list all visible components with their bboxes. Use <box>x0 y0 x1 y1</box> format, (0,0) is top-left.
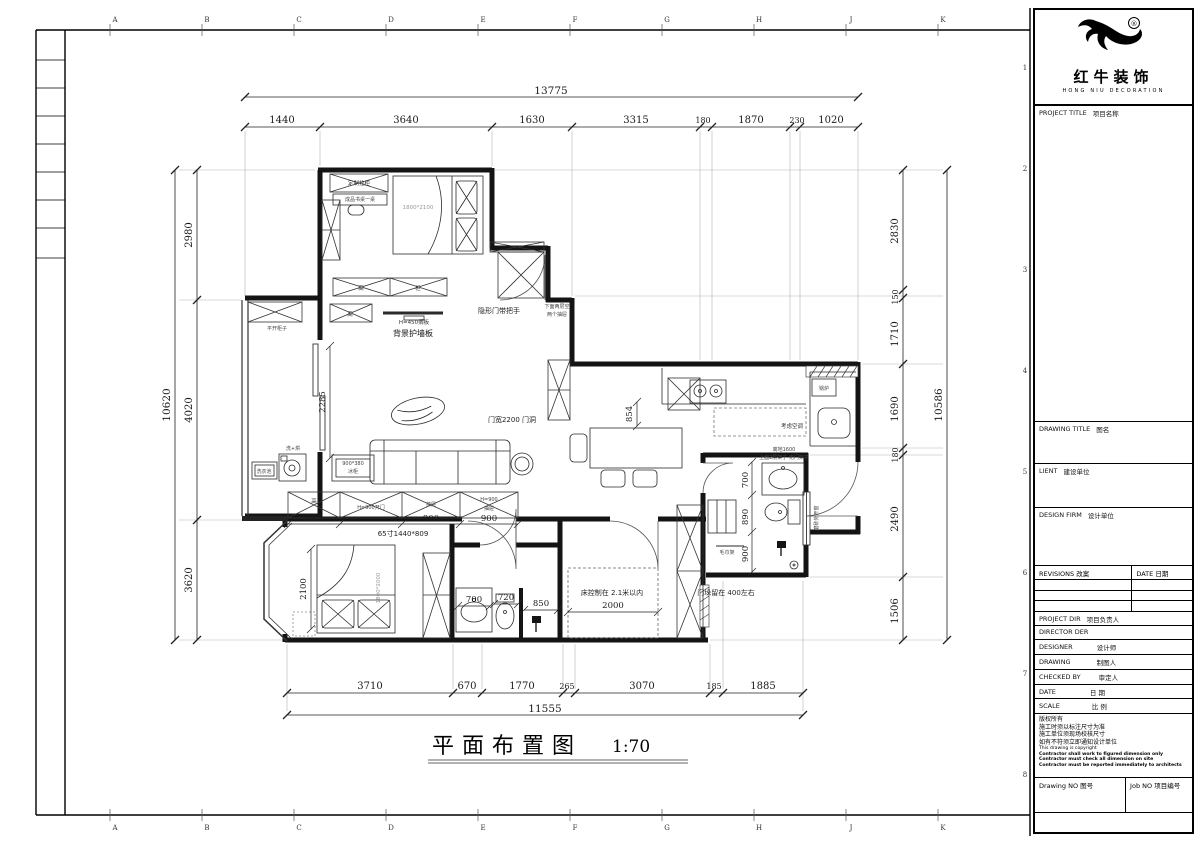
dim-label: 1885 <box>750 681 775 692</box>
master-wardrobe <box>423 553 450 638</box>
grid-number: 3 <box>1023 266 1027 274</box>
floor-plan-canvas: A B C D E F G H J K A B C D E F G H J K … <box>0 0 1032 844</box>
dim-bath1: 720 <box>498 593 514 603</box>
balcony-window <box>242 300 288 521</box>
dim-tv-row: 900 <box>423 514 439 524</box>
walls <box>245 168 860 642</box>
project-title-section: PROJECT TITLE 项目名称 <box>1035 106 1192 422</box>
dim-label: 670 <box>457 681 476 692</box>
label-cab-tall2: 高 <box>347 310 353 318</box>
tv <box>383 313 443 320</box>
grid-letter: H <box>756 824 762 832</box>
washer-dryer <box>279 454 306 481</box>
design-firm-cn: 设计单位 <box>1088 510 1114 520</box>
grid-letters-top: A B C D E F G H J K <box>111 16 946 24</box>
dim-label: 3315 <box>623 115 648 126</box>
bedroom1-low-cabinets <box>333 278 447 296</box>
job-no-cn: 项目编号 <box>1154 782 1180 790</box>
grid-letter: H <box>756 16 762 24</box>
director-en: DIRECTOR DER <box>1039 628 1088 636</box>
dim-living-wall: 2285 <box>318 391 328 413</box>
dim-bath2: 900 <box>741 546 751 562</box>
scale-row: SCALE 比 例 <box>1035 699 1192 714</box>
label-towel-rack: 毛巾架 <box>719 549 734 556</box>
dim-label: 1710 <box>890 321 901 346</box>
client-en: LIENT <box>1039 467 1057 475</box>
drawing-title-cn: 图名 <box>1096 424 1109 434</box>
dim-bath2: 700 <box>741 472 751 488</box>
dim-label: 265 <box>559 682 574 691</box>
plan-labels: 定制挂柜 成品书桌一桌 1800*2100 高 柜 隐形门带把手 下面两层空 两… <box>256 179 829 603</box>
dim-label: 185 <box>706 682 721 691</box>
project-title-cn: 项目名称 <box>1093 108 1119 118</box>
label-laundry-sink: 洗衣池 <box>256 468 271 475</box>
label-cab-tall: 高 <box>358 284 364 292</box>
brand-logo-section: ® 红牛装饰 HONG NIU DECORATION <box>1035 10 1192 106</box>
sofa <box>370 440 510 484</box>
dim-label: 4020 <box>184 397 195 422</box>
dim-right-total: 10586 <box>933 388 945 422</box>
dim-bed2-width: 2100 <box>299 578 309 600</box>
grid-letter: A <box>111 16 118 24</box>
label-balcony-cabinet: 平开柜子 <box>267 325 287 332</box>
label-shelf-note-2: 上面2层架子 无门架子 <box>759 454 809 461</box>
scale-en: SCALE <box>1039 702 1060 710</box>
dim-label: 1506 <box>890 598 901 623</box>
copyright-line: 如有不符须立即通知设计单位 <box>1039 739 1188 747</box>
label-freezer: 冰柜 <box>348 468 358 475</box>
drawing-no-cn: 图号 <box>1080 782 1093 790</box>
date-row: DATE 日 期 <box>1035 685 1192 699</box>
grid-letter: K <box>940 16 946 24</box>
tv-size-note: 65寸1440*809 <box>378 529 429 538</box>
label-shelf-note-1: 离地1600 <box>773 446 796 453</box>
dim-top-total: 13775 <box>534 85 567 97</box>
revisions-table: REVISIONS 改案 DATE 日期 <box>1035 566 1192 612</box>
job-no-en: Job NO <box>1130 782 1152 790</box>
dim-label: 1630 <box>519 115 544 126</box>
rev-date-en: DATE <box>1136 570 1153 578</box>
grid-number: 6 <box>1023 569 1028 577</box>
label-freezer-size: 900*380 <box>342 461 364 467</box>
copyright-line: 版权所有 <box>1039 716 1188 724</box>
designer-cn: 设计师 <box>1097 642 1117 652</box>
hall-shoe-cabinet <box>548 360 570 420</box>
revision-row <box>1035 591 1192 602</box>
grid-number: 8 <box>1023 771 1027 779</box>
dim-label: 180 <box>891 447 900 462</box>
drawing-by-row: DRAWING 制图人 <box>1035 655 1192 670</box>
grid-letter: F <box>573 16 578 24</box>
dim-label: 3070 <box>629 681 654 692</box>
copyright-line: 施工单位须现场校核尺寸 <box>1039 731 1188 739</box>
kitchen-bay-window <box>806 366 858 377</box>
drawing-by-en: DRAWING <box>1039 658 1071 666</box>
brand-name: 红牛装饰 <box>1035 66 1192 87</box>
stove <box>690 380 726 403</box>
bathroom-window <box>803 492 810 545</box>
drawing-title-en: DRAWING TITLE <box>1039 425 1090 433</box>
balcony-cabinet-box <box>248 302 302 322</box>
drawing-by-cn: 制图人 <box>1097 657 1117 667</box>
grid-letter: B <box>204 824 209 832</box>
dim-chain-top: 13775 1440 3640 1630 3315 180 1870 230 1… <box>241 85 862 131</box>
bedroom3-wardrobe <box>677 505 703 638</box>
drawing-sheet: A B C D E F G H J K A B C D E F G H J K … <box>0 0 1200 844</box>
bedroom1-wall-wardrobe <box>322 200 340 260</box>
hidden-door-arc <box>500 255 545 300</box>
label-custom-cabinet: 定制挂柜 <box>348 179 371 187</box>
dim-label: 180 <box>695 116 710 125</box>
dim-label: 3710 <box>357 681 382 692</box>
grid-letter: J <box>849 16 853 24</box>
dim-label: 3620 <box>184 567 195 592</box>
design-firm-section: DESIGN FIRM 设计单位 <box>1035 508 1192 566</box>
label-hidden-door: 隐形门带把手 <box>478 306 520 315</box>
label-door-opening: 门宽2200 门洞 <box>488 415 536 424</box>
bath2-door-arc <box>703 463 733 493</box>
revision-row <box>1035 580 1192 591</box>
drawing-number-section: Drawing NO 图号 Job NO 项目编号 <box>1035 778 1192 813</box>
dim-label: 1770 <box>509 681 534 692</box>
grid-letter: B <box>204 16 209 24</box>
grid-letter: J <box>849 824 853 832</box>
doors <box>468 255 858 569</box>
label-tv-cab-4a: H=900 <box>480 497 498 503</box>
dim-label: 230 <box>789 116 804 125</box>
label-window-note: 磨砂外开窗 <box>813 505 820 530</box>
dim-label: 150 <box>891 289 900 304</box>
dim-tv-row: 880 <box>306 514 322 524</box>
dim-label: 3640 <box>393 115 418 126</box>
furniture <box>252 176 856 640</box>
dim-bottom-total: 11555 <box>528 703 561 715</box>
plan-title: 平面布置图 <box>432 734 582 759</box>
grid-letter: G <box>664 824 670 832</box>
dim-bath1: 700 <box>466 595 482 605</box>
label-bed1-size: 1800*2100 <box>403 205 434 211</box>
project-dir-cn: 项目负责人 <box>1087 614 1120 624</box>
grid-letter: E <box>480 16 485 24</box>
revision-strip <box>36 60 65 258</box>
dim-chain-bottom: 11555 3710 670 1770 265 3070 185 1885 <box>283 681 807 719</box>
label-ac-note: 考虑空调 <box>781 422 804 430</box>
label-drawers-1: 下面两层空 <box>544 303 569 310</box>
overhead-cabinets <box>714 408 806 436</box>
label-shelf: H=450搁板 <box>399 318 430 326</box>
freezer <box>332 455 374 481</box>
drawing-no-en: Drawing NO <box>1039 782 1078 790</box>
dim-dining-gap: 854 <box>625 406 635 422</box>
checked-by-cn: 审定人 <box>1099 672 1119 682</box>
dim-bath2: 890 <box>741 509 751 525</box>
project-dir-row: PROJECT DIR 项目负责人 <box>1035 612 1192 626</box>
dim-left-total: 10620 <box>161 388 173 421</box>
drawing-title-section: DRAWING TITLE 图名 <box>1035 422 1192 464</box>
kitchen-sink <box>818 408 850 438</box>
director-row: DIRECTOR DER <box>1035 626 1192 640</box>
brand-subtitle: HONG NIU DECORATION <box>1035 88 1192 94</box>
design-firm-en: DESIGN FIRM <box>1039 511 1082 519</box>
dim-chain-left: 10620 2980 4020 3620 <box>161 166 201 644</box>
dim-bed3-width: 2000 <box>602 601 624 611</box>
label-pier-note: 门垛留在 400左右 <box>697 588 755 597</box>
label-tv-cab-3: 抽屉 <box>426 501 436 508</box>
checked-by-en: CHECKED BY <box>1039 673 1081 681</box>
plan-title-group: 平面布置图 1:70 <box>428 734 688 763</box>
label-desk: 成品书桌一桌 <box>345 196 375 203</box>
dim-chain-right: 10586 2830 150 1710 1690 180 2490 1506 <box>890 166 951 644</box>
grid-number: 7 <box>1023 670 1027 678</box>
project-title-en: PROJECT TITLE <box>1039 109 1087 117</box>
grid-letter: A <box>111 824 118 832</box>
bay-window <box>264 521 292 641</box>
checked-by-row: CHECKED BY 审定人 <box>1035 670 1192 685</box>
grid-letter: D <box>388 824 394 832</box>
label-cab-gui: 柜 <box>415 284 421 292</box>
coffee-table <box>389 393 447 430</box>
dim-label: 1690 <box>890 396 901 421</box>
label-washer: 洗+烘 <box>286 445 300 452</box>
revisions-cn: 改案 <box>1076 570 1089 578</box>
plan-scale: 1:70 <box>612 737 650 757</box>
grid-number: 1 <box>1023 64 1027 72</box>
label-tv-cab-4b: 抽屉 <box>484 505 494 512</box>
project-dir-en: PROJECT DIR <box>1039 615 1081 623</box>
bull-logo-icon: ® <box>1074 15 1154 61</box>
dim-tv-row: 900 <box>481 514 497 524</box>
bedroom3-door-arc <box>610 521 658 569</box>
dining-set <box>570 428 682 487</box>
dim-label: 1440 <box>269 115 294 126</box>
client-section: LIENT 建设单位 <box>1035 464 1192 508</box>
label-tv-cab-1: 高 <box>311 497 317 505</box>
grid-letter: D <box>388 16 394 24</box>
label-drawers-2: 两个抽屉 <box>547 311 567 318</box>
grid-letter: K <box>940 824 946 832</box>
title-block-footer <box>1035 813 1192 832</box>
dim-label: 1870 <box>738 115 763 126</box>
dim-label: 1020 <box>818 115 843 126</box>
grid-letter: F <box>573 824 578 832</box>
revisions-en: REVISIONS <box>1039 570 1074 578</box>
date-cn: 日 期 <box>1090 687 1105 697</box>
revision-row <box>1035 601 1192 611</box>
label-boiler: 锅炉 <box>819 385 829 392</box>
grid-number: 4 <box>1023 367 1028 375</box>
client-cn: 建设单位 <box>1063 466 1089 476</box>
grid-numbers-right: 1 2 3 4 5 6 7 8 <box>1023 64 1028 779</box>
date-en: DATE <box>1039 688 1056 696</box>
dim-label: 2980 <box>184 222 195 247</box>
rev-date-cn: 日期 <box>1155 570 1168 578</box>
grid-letter: C <box>296 824 301 832</box>
dim-label: 2490 <box>890 506 901 531</box>
registered-mark: ® <box>1130 20 1137 28</box>
grid-letters-bottom: A B C D E F G H J K <box>111 824 946 832</box>
designer-row: DESIGNER 设计师 <box>1035 640 1192 655</box>
grid-letter: E <box>480 824 485 832</box>
grid-letter: G <box>664 16 670 24</box>
designer-en: DESIGNER <box>1039 643 1073 651</box>
title-block: ® 红牛装饰 HONG NIU DECORATION PROJECT TITLE… <box>1033 8 1194 834</box>
copyright-line: 施工时须以标注尺寸为准 <box>1039 724 1188 732</box>
side-table <box>511 453 533 475</box>
scale-cn: 比 例 <box>1092 701 1107 711</box>
label-bed3-note: 床控制在 2.1米以内 <box>581 588 643 597</box>
label-wall-panel: 背景护墙板 <box>393 328 433 338</box>
dim-label: 2830 <box>890 218 901 243</box>
copyright-section: 版权所有 施工时须以标注尺寸为准 施工单位须现场校核尺寸 如有不符须立即通知设计… <box>1035 714 1192 778</box>
grid-number: 5 <box>1023 468 1027 476</box>
copyright-line-bold: Contractor must be reported immediately … <box>1039 763 1188 769</box>
label-bed2-size: 1800*2000 <box>376 572 382 603</box>
label-tv-cab-2: H=900开门 <box>357 504 385 511</box>
grid-letter: C <box>296 16 301 24</box>
grid-number: 2 <box>1023 165 1027 173</box>
dim-bath1: 850 <box>533 599 549 609</box>
bed1 <box>393 176 483 254</box>
